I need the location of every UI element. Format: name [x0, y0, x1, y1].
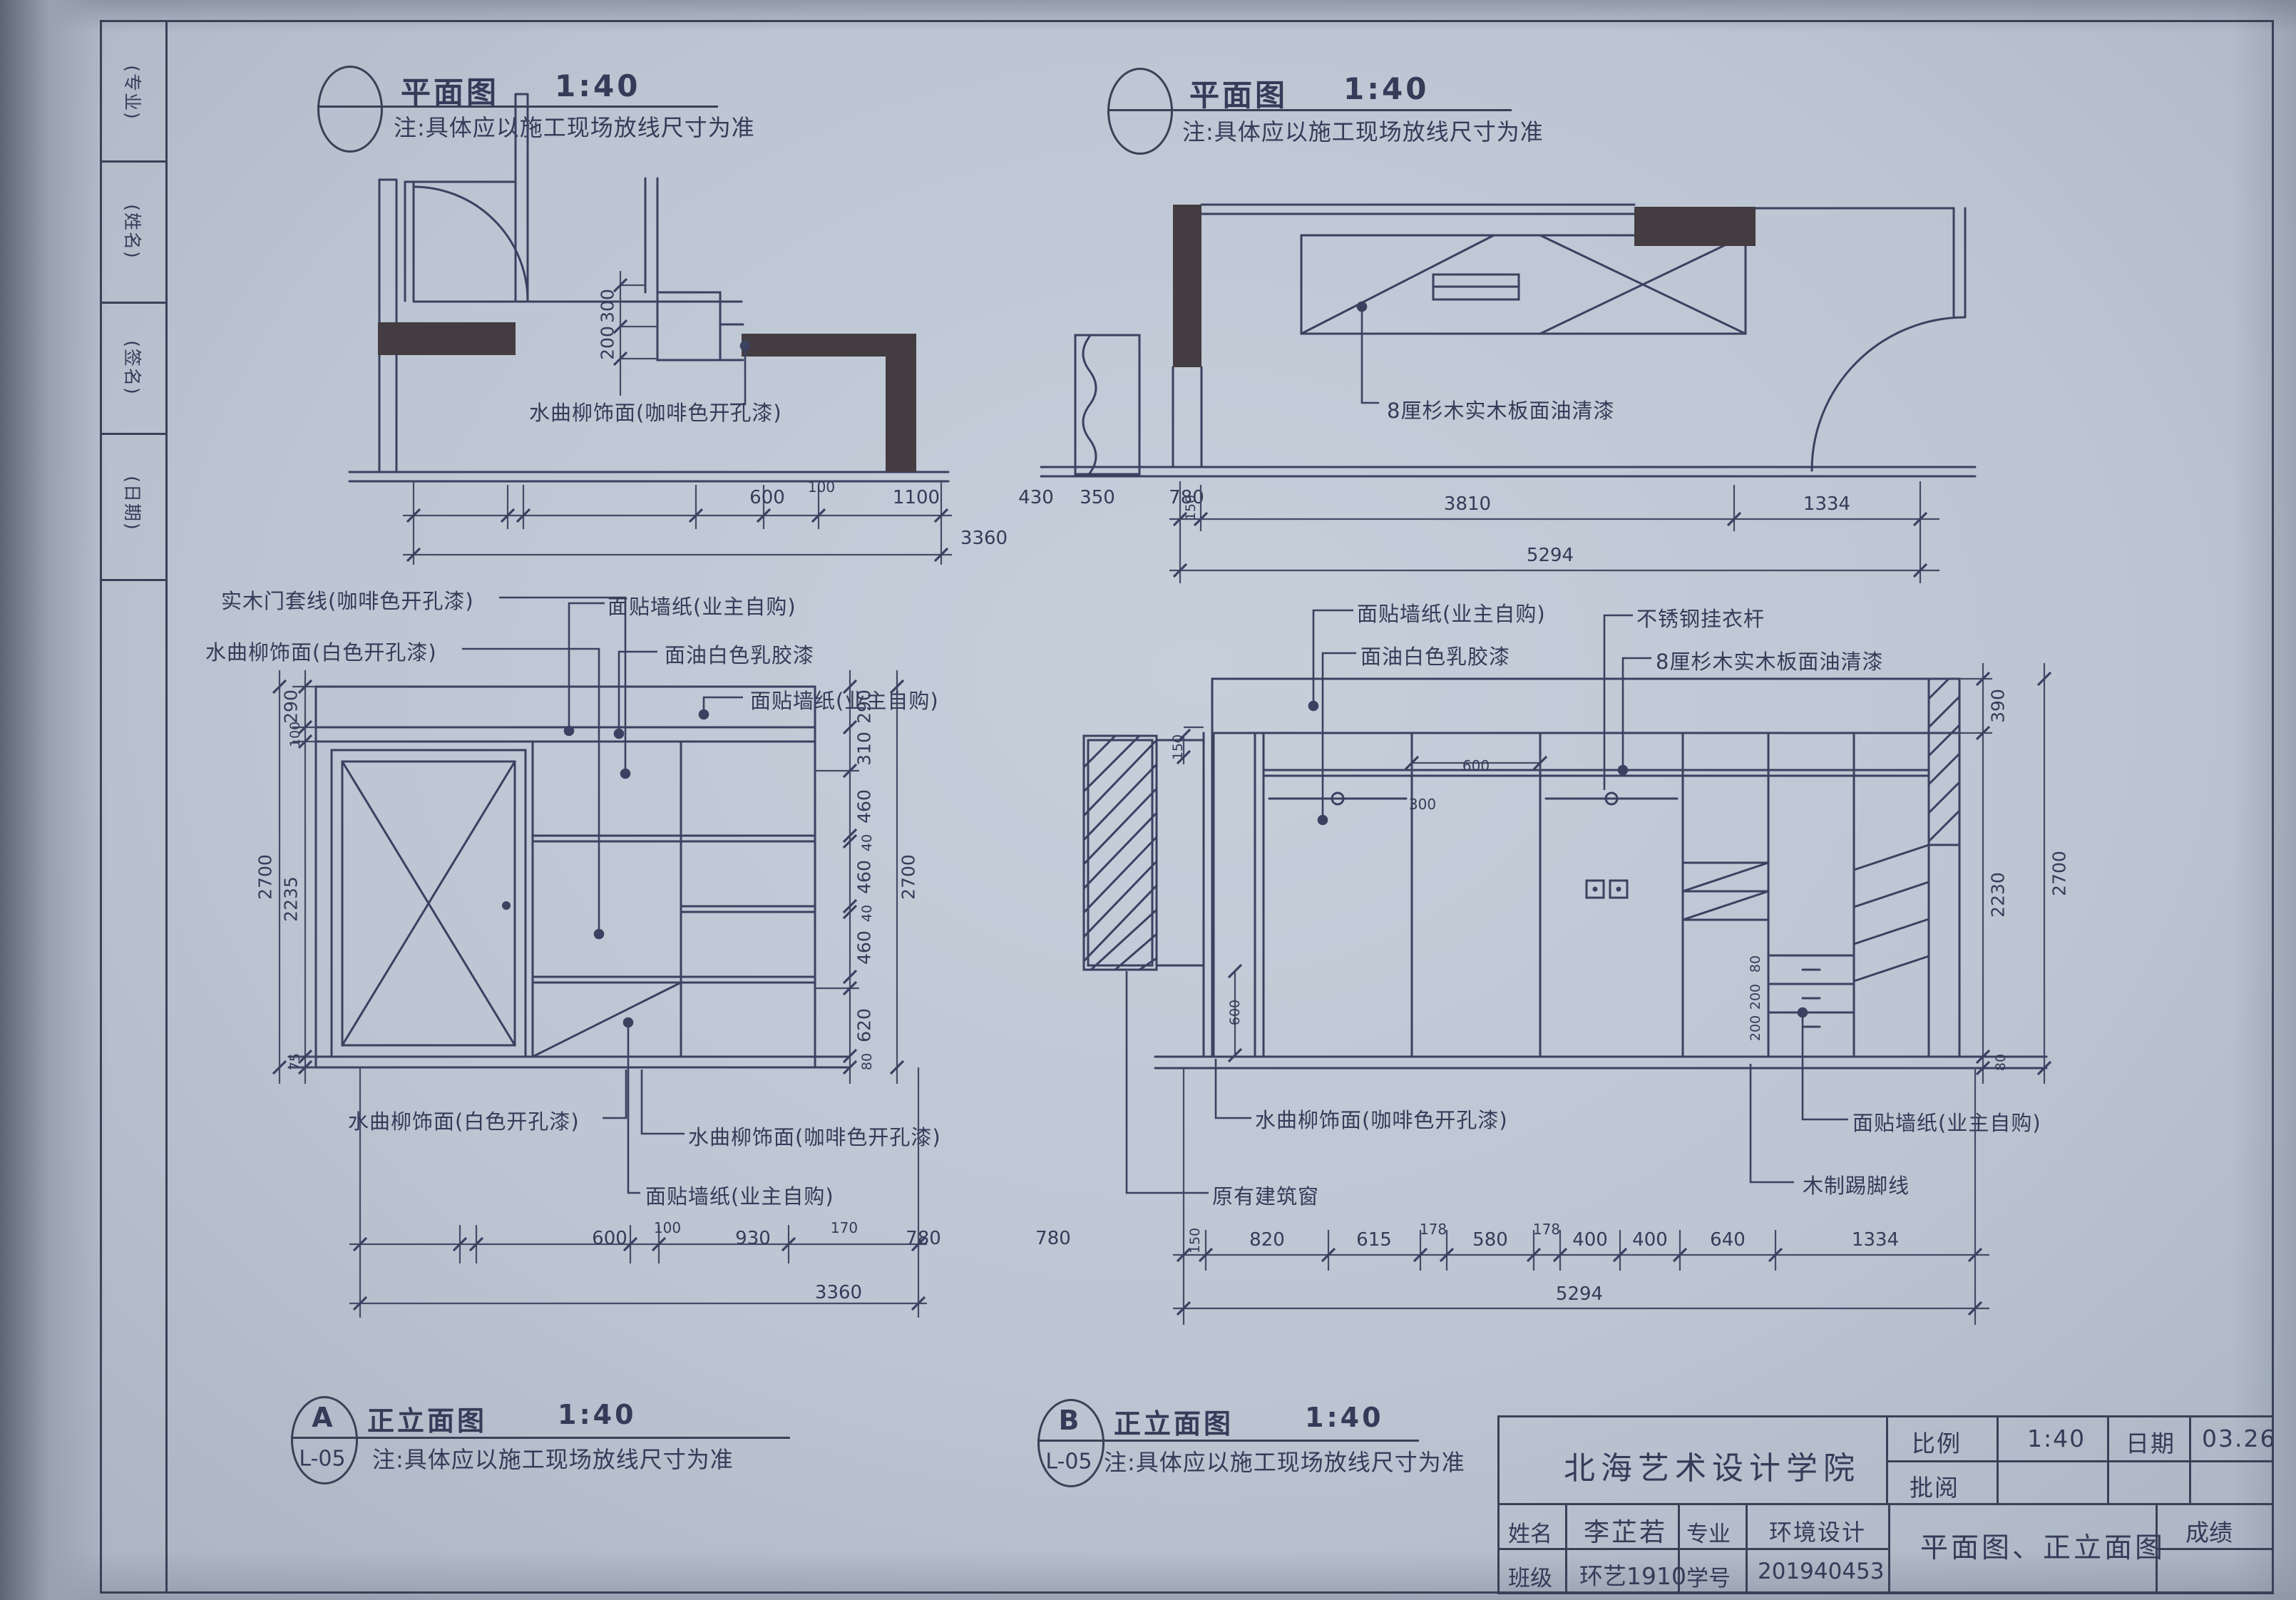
elevation-a-note: 注:具体应以施工现场放线尺寸为准 [372, 1442, 734, 1475]
dim-label: 930 [735, 1228, 771, 1249]
dim-label: 600 [749, 487, 785, 508]
dim-label: 460 [854, 860, 875, 894]
date-label: 日期 [2126, 1425, 2175, 1459]
dim-label: 820 [1249, 1229, 1285, 1251]
dim-label: 310 [854, 732, 875, 766]
dim-label: 460 [854, 930, 875, 965]
grade-label: 成绩 [2185, 1514, 2233, 1548]
elevation-b-scale: 1:40 [1305, 1402, 1384, 1433]
dim-label: 170 [831, 1219, 858, 1236]
edge-label-name: (姓名) [121, 204, 146, 260]
dim-label: 80 [859, 1053, 875, 1070]
name-value: 李芷若 [1584, 1512, 1667, 1549]
material-label: 面贴墙纸(业主自购) [645, 1180, 834, 1210]
edge-strip-divider [100, 302, 168, 304]
dim-label: 100 [808, 478, 835, 496]
elevation-a-drawing [200, 556, 955, 1376]
class-label: 班级 [1508, 1560, 1552, 1592]
dim-label: 150 [1187, 1228, 1203, 1253]
title-block: 北海艺术设计学院 比例 1:40 日期 03.26 批阅 姓名 李芷若 专业 环… [1497, 1415, 2274, 1594]
material-label: 实木门套线(咖啡色开孔漆) [221, 585, 474, 615]
frame-left [100, 20, 102, 1593]
tb-line [1888, 1503, 1890, 1592]
review-label: 批阅 [1910, 1469, 1959, 1503]
dim-label: 178 [1533, 1221, 1560, 1238]
dim-total-label: 2700 [255, 854, 276, 900]
dim-label: 1334 [1803, 493, 1850, 515]
dim-label: 640 [1710, 1229, 1746, 1251]
material-label: 面贴墙纸(业主自购) [750, 684, 939, 714]
dim-label: 600 [1227, 1000, 1243, 1025]
plan-right-title-underline [1107, 109, 1512, 111]
edge-strip-divider [100, 160, 168, 163]
dim-total-label: 2700 [2049, 851, 2070, 896]
dim-label: 2235 [281, 876, 302, 922]
plan-right-title: 平面图 [1189, 71, 1288, 115]
major-value: 环境设计 [1769, 1514, 1866, 1547]
elevation-a-title-underline [291, 1437, 790, 1439]
edge-label-major: (专业) [121, 65, 146, 120]
elevation-a-ref: L-05 [299, 1447, 345, 1472]
dim-label: 80 [1748, 955, 1763, 973]
elevation-a-title: 正立面图 [367, 1399, 487, 1438]
dim-label: 290 [854, 689, 875, 724]
edge-strip-divider [100, 579, 168, 581]
dim-label: 300 [1409, 796, 1436, 813]
drawing-sheet: (专业) (姓名) (签名) (日期) 平面图 1:40 注:具体应以施工现场放… [0, 0, 2296, 1600]
material-label: 不锈钢挂衣杆 [1636, 602, 1765, 632]
dim-label: 600 [592, 1228, 627, 1249]
dim-label: 400 [1572, 1229, 1608, 1251]
plan-right-title-bubble [1107, 68, 1173, 155]
dim-label: 40 [859, 905, 875, 922]
scale-value: 1:40 [2027, 1425, 2086, 1452]
dim-label: 100 [654, 1219, 681, 1236]
dim-label: 460 [854, 789, 875, 824]
material-label: 水曲柳饰面(咖啡色开孔漆) [688, 1121, 941, 1151]
finish-label: 水曲柳饰面(咖啡色开孔漆) [529, 396, 782, 426]
material-label: 面油白色乳胶漆 [665, 639, 814, 669]
frame-inner-left [165, 20, 168, 1593]
frame-top [100, 20, 2274, 22]
material-label: 面油白色乳胶漆 [1360, 640, 1510, 670]
elevation-b-title: 正立面图 [1114, 1402, 1234, 1441]
date-value: 03.26 [2202, 1425, 2276, 1452]
dim-label: 2230 [1988, 872, 2009, 918]
dim-label: 1334 [1852, 1229, 1899, 1251]
tb-line [1500, 1548, 1888, 1550]
dim-label: 620 [854, 1008, 875, 1042]
plan-right-drawing [1027, 171, 2025, 599]
material-label: 水曲柳饰面(咖啡色开孔漆) [1255, 1104, 1508, 1134]
dim-label: 1100 [893, 487, 940, 508]
dim-total-label: 5294 [1556, 1283, 1603, 1305]
dim-total-label: 2700 [898, 854, 919, 900]
major-label: 专业 [1686, 1516, 1731, 1548]
student-id-value: 201940453 [1758, 1559, 1885, 1584]
plan-right-note: 注:具体应以施工现场放线尺寸为准 [1182, 114, 1544, 147]
student-id-label: 学号 [1686, 1560, 1731, 1592]
dim-label: 178 [1420, 1221, 1447, 1238]
frame-right [2272, 20, 2274, 1593]
school-name: 北海艺术设计学院 [1564, 1442, 1860, 1488]
drawing-title: 平面图、正立面图 [1920, 1526, 2166, 1566]
dim-label: 200 [1748, 1015, 1763, 1041]
dim-label: 100 [287, 722, 303, 747]
dim-total-label: 3360 [960, 528, 1008, 549]
dim-label: 150 [1183, 495, 1199, 520]
dim-label: 3810 [1444, 493, 1491, 515]
finish-label: 8厘杉木实木板面油清漆 [1387, 394, 1614, 424]
material-label: 木制踢脚线 [1803, 1169, 1910, 1199]
plan-right-scale: 1:40 [1343, 71, 1429, 106]
material-label: 原有建筑窗 [1212, 1180, 1319, 1210]
dim-label: 400 [1632, 1229, 1668, 1251]
material-label: 面贴墙纸(业主自购) [1852, 1107, 2041, 1137]
class-value: 环艺1910 [1579, 1557, 1686, 1591]
dim-label: 290 [281, 689, 302, 724]
elevation-b-ref: L-05 [1045, 1450, 1092, 1475]
elevation-b-tag: B [1059, 1405, 1080, 1436]
dim-label: 150 [1170, 734, 1186, 760]
dim-label: 80 [1993, 1054, 2009, 1071]
tb-line [2156, 1548, 2272, 1550]
tb-line [1886, 1460, 2272, 1462]
elevation-b-note: 注:具体应以施工现场放线尺寸为准 [1104, 1445, 1465, 1477]
material-label: 面贴墙纸(业主自购) [1357, 598, 1546, 627]
dim-label: 40 [859, 834, 875, 851]
plan-left-drawing [307, 78, 963, 570]
dim-label: 75 [287, 1053, 303, 1070]
dim-label: 580 [1472, 1229, 1508, 1251]
dim-label: 200 [1748, 984, 1763, 1010]
dim-label: 600 [1462, 757, 1490, 774]
edge-strip-divider [100, 433, 168, 435]
dim-label: 300 [598, 289, 618, 323]
name-label: 姓名 [1508, 1516, 1552, 1548]
scale-label: 比例 [1912, 1425, 1962, 1459]
dim-label: 615 [1356, 1229, 1392, 1251]
dim-label: 200 [598, 326, 618, 360]
dim-label: 390 [1988, 689, 2009, 723]
dim-label: 780 [906, 1228, 941, 1249]
dim-total-label: 3360 [815, 1282, 862, 1303]
material-label: 面贴墙纸(业主自购) [608, 590, 796, 620]
elevation-a-scale: 1:40 [558, 1399, 637, 1430]
material-label: 8厘杉木实木板面油清漆 [1656, 645, 1883, 675]
elevation-a-tag: A [312, 1402, 332, 1433]
material-label: 水曲柳饰面(白色开孔漆) [205, 636, 437, 666]
edge-label-sign: (签名) [121, 340, 146, 396]
edge-label-date: (日期) [121, 476, 146, 531]
material-label: 水曲柳饰面(白色开孔漆) [348, 1105, 580, 1135]
